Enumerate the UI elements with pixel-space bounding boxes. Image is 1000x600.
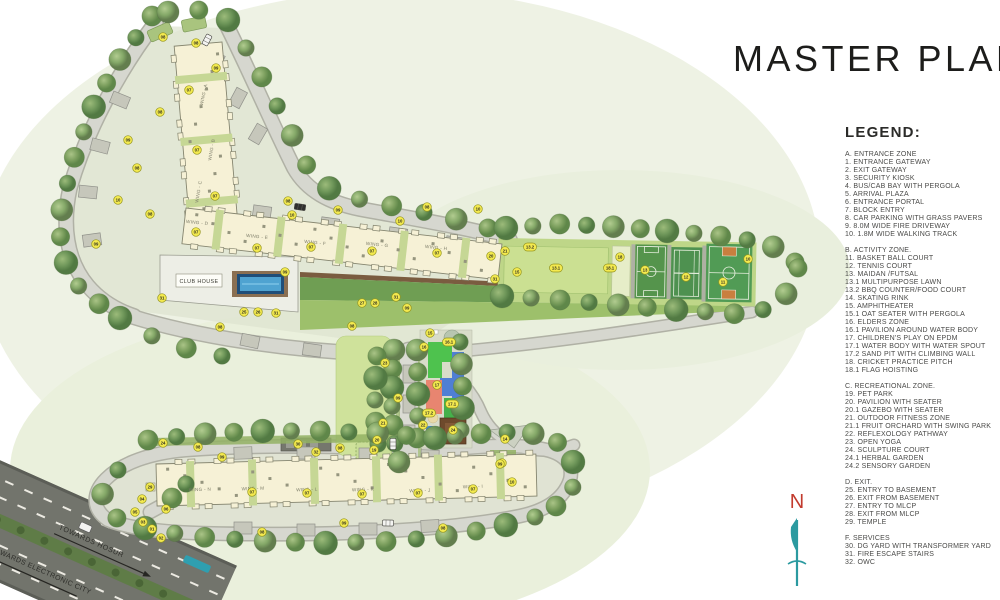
map-marker: 21 — [501, 247, 510, 256]
svg-text:10: 10 — [398, 219, 403, 224]
tree — [214, 348, 231, 365]
tree — [51, 228, 69, 246]
legend-item: 3. SECURITY KIOSK — [845, 175, 997, 183]
legend-item: 32. OWC — [845, 559, 997, 567]
tree — [739, 232, 756, 249]
tree — [167, 525, 184, 542]
map-marker: 08 — [156, 108, 165, 117]
map-marker: 21 — [379, 419, 388, 428]
map-marker: 12 — [682, 273, 691, 282]
map-marker: 07 — [368, 247, 377, 256]
svg-text:09: 09 — [126, 138, 131, 143]
north-arrow-icon — [775, 512, 819, 592]
map-marker: 11 — [719, 278, 728, 287]
svg-text:26: 26 — [256, 310, 261, 315]
svg-text:17: 17 — [435, 383, 440, 388]
map-marker: 30 — [294, 440, 303, 449]
map-marker: 23 — [381, 359, 390, 368]
legend-item: 23. OPEN YOGA — [845, 439, 997, 447]
map-marker: 10 — [508, 478, 517, 487]
legend-section: D. EXIT.25. ENTRY TO BASEMENT26. EXIT FR… — [845, 479, 997, 527]
map-marker: 07 — [253, 244, 262, 253]
tree — [138, 430, 158, 450]
tree — [70, 278, 87, 295]
map-marker: 31 — [158, 294, 167, 303]
legend-item: F. SERVICES — [845, 535, 997, 543]
legend-item: C. RECREATIONAL ZONE. — [845, 383, 997, 391]
car — [294, 203, 306, 210]
svg-text:08: 08 — [286, 199, 291, 204]
tree — [711, 226, 731, 246]
tree — [522, 423, 544, 445]
svg-text:09: 09 — [342, 521, 347, 526]
svg-text:32: 32 — [314, 450, 319, 455]
legend-section: A. ENTRANCE ZONE1. ENTRANCE GATEWAY2. EX… — [845, 151, 997, 239]
svg-text:31: 31 — [394, 295, 399, 300]
legend-item: 13. MAIDAN /FUTSAL — [845, 271, 997, 279]
svg-text:09: 09 — [94, 242, 99, 247]
svg-text:13.1: 13.1 — [552, 266, 561, 271]
svg-text:21: 21 — [503, 249, 508, 254]
page-title: MASTER PLAN — [733, 38, 995, 80]
tree — [724, 304, 744, 324]
tree — [283, 423, 300, 440]
map-marker: 01 — [148, 525, 157, 534]
legend-item: 30. DG YARD WITH TRANSFORMER YARD — [845, 543, 997, 551]
map-marker: 16 — [420, 343, 429, 352]
tree — [409, 363, 427, 381]
tree — [631, 220, 649, 238]
map-marker: 26 — [254, 308, 263, 317]
tree — [490, 284, 514, 308]
tree — [453, 377, 471, 395]
tree — [423, 426, 447, 450]
tree — [655, 219, 679, 243]
map-marker: 31 — [392, 293, 401, 302]
map-marker: 09 — [340, 519, 349, 528]
map-marker: 32 — [312, 448, 321, 457]
svg-text:08: 08 — [260, 530, 265, 535]
tree — [664, 298, 688, 322]
tree — [59, 175, 76, 192]
legend-panel: LEGEND: A. ENTRANCE ZONE1. ENTRANCE GATE… — [845, 124, 997, 575]
map-marker: 07 — [185, 86, 194, 95]
svg-text:28: 28 — [373, 301, 378, 306]
map-marker: 07 — [414, 489, 423, 498]
map-marker: 08 — [192, 39, 201, 48]
legend-item: 15. AMPHITHEATER — [845, 303, 997, 311]
car — [382, 520, 393, 526]
legend-section: B. ACTIVITY ZONE.11. BASKET BALL COURT12… — [845, 247, 997, 375]
map-marker: 09 — [496, 460, 505, 469]
map-marker: 28 — [371, 299, 380, 308]
map-marker: 08 — [216, 323, 225, 332]
map-marker: 08 — [423, 203, 432, 212]
svg-text:30: 30 — [296, 442, 301, 447]
svg-text:10: 10 — [746, 257, 751, 262]
legend-item: 20.1 GAZEBO WITH SEATER — [845, 407, 997, 415]
master-plan-page: TOWARDS HOSUR TOWARDS ELECTRONIC CITY — [0, 0, 1000, 600]
legend-item: 25. ENTRY TO BASEMENT — [845, 487, 997, 495]
tree — [51, 199, 73, 221]
wing-label: WING - N — [189, 487, 211, 493]
tree — [523, 290, 540, 307]
legend-item: 17.2 SAND PIT WITH CLIMBING WALL — [845, 351, 997, 359]
map-marker: 17 — [433, 381, 442, 390]
map-marker: 16.1 — [443, 338, 456, 346]
tree — [406, 382, 430, 406]
map-marker: 15 — [513, 268, 522, 277]
svg-text:02: 02 — [159, 536, 164, 541]
tree — [108, 306, 132, 330]
svg-text:09: 09 — [336, 208, 341, 213]
svg-text:08: 08 — [135, 166, 140, 171]
map-marker: 08 — [159, 33, 168, 42]
legend-item: 4. BUS/CAB BAY WITH PERGOLA — [845, 183, 997, 191]
svg-text:08: 08 — [441, 526, 446, 531]
map-marker: 08 — [194, 443, 203, 452]
svg-text:07: 07 — [305, 491, 310, 496]
driveway-ramp — [234, 447, 252, 460]
svg-text:15: 15 — [515, 270, 520, 275]
map-marker: 22 — [419, 421, 428, 430]
map-marker: 08 — [146, 210, 155, 219]
tree — [176, 338, 196, 358]
svg-text:10: 10 — [290, 213, 295, 218]
svg-text:01: 01 — [150, 527, 155, 532]
svg-text:31: 31 — [160, 296, 165, 301]
tree — [775, 283, 797, 305]
map-marker: 07 — [248, 488, 257, 497]
svg-text:08: 08 — [425, 205, 430, 210]
legend-item: B. ACTIVITY ZONE. — [845, 247, 997, 255]
map-marker: 09 — [394, 394, 403, 403]
driveway-ramp — [359, 523, 377, 535]
svg-text:20: 20 — [489, 254, 494, 259]
legend-item: 18.1 FLAG HOISTING — [845, 367, 997, 375]
map-marker: 24 — [159, 439, 168, 448]
tree — [157, 1, 179, 23]
svg-text:18: 18 — [618, 255, 623, 260]
legend-item: 18. CRICKET PRACTICE PITCH — [845, 359, 997, 367]
legend-section: C. RECREATIONAL ZONE.19. PET PARK20. PAV… — [845, 383, 997, 471]
svg-text:07: 07 — [213, 194, 218, 199]
map-marker: 03 — [139, 518, 148, 527]
svg-text:04: 04 — [140, 497, 145, 502]
map-marker: 13 — [641, 266, 650, 275]
svg-text:18.1: 18.1 — [606, 266, 615, 271]
svg-text:23: 23 — [383, 361, 388, 366]
svg-text:22: 22 — [421, 423, 426, 428]
tree — [546, 496, 566, 516]
tree — [128, 29, 145, 46]
tree — [467, 522, 485, 540]
svg-text:12: 12 — [684, 275, 689, 280]
svg-text:07: 07 — [370, 249, 375, 254]
svg-text:08: 08 — [196, 445, 201, 450]
svg-text:07: 07 — [360, 492, 365, 497]
tree — [548, 433, 566, 451]
svg-text:07: 07 — [309, 245, 314, 250]
tree — [314, 531, 338, 555]
tree — [607, 294, 629, 316]
tree — [64, 147, 84, 167]
map-marker: 10 — [744, 255, 753, 264]
legend-item: 6. ENTRANCE PORTAL — [845, 199, 997, 207]
svg-text:05: 05 — [133, 510, 138, 515]
tree — [110, 462, 127, 479]
map-marker: 20 — [373, 436, 382, 445]
legend-item: 24.2 SENSORY GARDEN — [845, 463, 997, 471]
map-marker: 20 — [487, 252, 496, 261]
tree — [376, 531, 396, 551]
tree — [317, 176, 341, 200]
svg-text:31: 31 — [274, 311, 279, 316]
club-house-label: CLUB HOUSE — [179, 279, 218, 285]
tree — [527, 509, 544, 526]
tree — [251, 419, 275, 443]
svg-text:09: 09 — [498, 462, 503, 467]
tree — [109, 48, 131, 70]
tree — [638, 298, 656, 316]
map-marker: 08 — [133, 164, 142, 173]
svg-text:09: 09 — [283, 270, 288, 275]
legend-item: A. ENTRANCE ZONE — [845, 151, 997, 159]
tree — [494, 513, 518, 537]
svg-text:09: 09 — [405, 306, 410, 311]
svg-text:08: 08 — [194, 41, 199, 46]
svg-text:29: 29 — [148, 485, 153, 490]
legend-item: 29. TEMPLE — [845, 519, 997, 527]
legend-item: 2. EXIT GATEWAY — [845, 167, 997, 175]
legend-item: 14. SKATING RINK — [845, 295, 997, 303]
svg-text:24: 24 — [451, 428, 456, 433]
svg-text:16.1: 16.1 — [445, 340, 454, 345]
compass: N — [775, 492, 819, 596]
tree — [388, 451, 410, 473]
legend-item: 24. SCULPTURE COURT — [845, 447, 997, 455]
legend-item: 1. ENTRANCE GATEWAY — [845, 159, 997, 167]
svg-text:13: 13 — [643, 268, 648, 273]
legend-heading: LEGEND: — [845, 124, 997, 141]
legend-item: 19. PET PARK — [845, 391, 997, 399]
legend-item: 16. ELDERS ZONE — [845, 319, 997, 327]
driveway-ramp — [302, 343, 321, 357]
svg-text:07: 07 — [435, 251, 440, 256]
map-marker: 13.1 — [550, 264, 563, 272]
map-marker: 08 — [258, 528, 267, 537]
map-marker: 08 — [284, 197, 293, 206]
legend-item: 12. TENNIS COURT — [845, 263, 997, 271]
tree — [382, 196, 402, 216]
map-marker: 31 — [272, 309, 281, 318]
svg-text:17.1: 17.1 — [448, 402, 457, 407]
legend-item: D. EXIT. — [845, 479, 997, 487]
map-marker: 05 — [131, 508, 140, 517]
tree — [686, 225, 703, 242]
svg-text:27: 27 — [360, 301, 365, 306]
svg-text:09: 09 — [214, 66, 219, 71]
tree — [310, 421, 330, 441]
map-marker: 07 — [469, 485, 478, 494]
tree — [450, 353, 472, 375]
map-marker: 06 — [162, 505, 171, 514]
map-marker: 08 — [348, 322, 357, 331]
svg-text:08: 08 — [350, 324, 355, 329]
map-marker: 24 — [449, 426, 458, 435]
map-marker: 09 — [218, 453, 227, 462]
tree — [565, 479, 582, 496]
svg-text:17.2: 17.2 — [425, 411, 434, 416]
tree — [348, 534, 365, 551]
map-marker: 18 — [616, 253, 625, 262]
tree — [789, 259, 807, 277]
svg-text:08: 08 — [161, 35, 166, 40]
map-marker: 07 — [192, 228, 201, 237]
map-marker: 09 — [334, 206, 343, 215]
tree — [144, 328, 161, 345]
svg-text:19: 19 — [372, 448, 377, 453]
map-marker: 07 — [307, 243, 316, 252]
tree — [252, 67, 272, 87]
tree — [76, 124, 93, 141]
svg-text:03: 03 — [141, 520, 146, 525]
map-marker: 25 — [240, 308, 249, 317]
legend-item: 24.1 HERBAL GARDEN — [845, 455, 997, 463]
map-marker: 19 — [370, 446, 379, 455]
map-marker: 17.1 — [446, 400, 459, 408]
legend-item: 8. CAR PARKING WITH GRASS PAVERS — [845, 215, 997, 223]
tree — [92, 483, 114, 505]
tree — [494, 216, 518, 240]
svg-text:07: 07 — [416, 491, 421, 496]
legend-list: A. ENTRANCE ZONE1. ENTRANCE GATEWAY2. EX… — [845, 151, 997, 567]
car — [390, 439, 396, 450]
legend-item: 7. BLOCK ENTRY — [845, 207, 997, 215]
map-marker: 07 — [193, 146, 202, 155]
compass-north-label: N — [775, 492, 819, 512]
legend-item: 27. ENTRY TO MLCP — [845, 503, 997, 511]
legend-item: 9. 8.0M WIDE FIRE DRIVEWAY — [845, 223, 997, 231]
map-marker: 17.2 — [423, 409, 436, 417]
map-marker: 07 — [211, 192, 220, 201]
map-marker: 10 — [474, 205, 483, 214]
tree — [561, 450, 585, 474]
tree — [364, 366, 388, 390]
svg-text:25: 25 — [242, 310, 247, 315]
svg-text:11: 11 — [721, 280, 726, 285]
tree — [578, 217, 595, 234]
tree — [367, 392, 384, 409]
tree — [550, 214, 570, 234]
legend-item: 21.1 FRUIT ORCHARD WITH SWING PARK — [845, 423, 997, 431]
tree — [697, 303, 714, 320]
tree — [194, 423, 216, 445]
tree — [108, 509, 126, 527]
tree — [602, 216, 624, 238]
map-marker: 09 — [92, 240, 101, 249]
legend-item: 11. BASKET BALL COURT — [845, 255, 997, 263]
legend-item: 28. EXIT FROM MLCP — [845, 511, 997, 519]
tree — [89, 294, 109, 314]
legend-item: 10. 1.8M WIDE WALKING TRACK — [845, 231, 997, 239]
tree — [216, 8, 240, 32]
svg-text:08: 08 — [158, 110, 163, 115]
tree — [525, 218, 542, 235]
tree — [408, 531, 425, 548]
svg-text:16: 16 — [422, 345, 427, 350]
map-marker: 10 — [114, 196, 123, 205]
map-marker: 10 — [288, 211, 297, 220]
map-marker: 29 — [146, 483, 155, 492]
tree — [445, 208, 467, 230]
tree — [281, 124, 303, 146]
map-marker: 07 — [433, 249, 442, 258]
svg-text:07: 07 — [471, 487, 476, 492]
tree — [581, 294, 598, 311]
tree — [97, 74, 115, 92]
map-marker: 08 — [439, 524, 448, 533]
svg-text:10: 10 — [116, 198, 121, 203]
svg-text:13.2: 13.2 — [526, 245, 535, 250]
svg-text:09: 09 — [396, 396, 401, 401]
map-marker: 07 — [303, 489, 312, 498]
driveway-ramp — [78, 185, 97, 199]
map-marker: 10 — [396, 217, 405, 226]
svg-text:07: 07 — [195, 148, 200, 153]
tree — [351, 191, 368, 208]
map-marker: 31 — [491, 275, 500, 284]
svg-text:07: 07 — [187, 88, 192, 93]
legend-item: 16.1 PAVILION AROUND WATER BODY — [845, 327, 997, 335]
svg-text:15: 15 — [428, 331, 433, 336]
svg-text:07: 07 — [255, 246, 260, 251]
svg-text:07: 07 — [194, 230, 199, 235]
map-marker: 04 — [138, 495, 147, 504]
tree — [54, 251, 78, 275]
tree — [269, 98, 286, 115]
svg-text:14: 14 — [503, 437, 508, 442]
svg-text:07: 07 — [250, 490, 255, 495]
legend-item: 20. PAVILION WITH SEATER — [845, 399, 997, 407]
svg-text:31: 31 — [493, 277, 498, 282]
legend-section: F. SERVICES30. DG YARD WITH TRANSFORMER … — [845, 535, 997, 567]
svg-text:08: 08 — [338, 446, 343, 451]
svg-text:08: 08 — [148, 212, 153, 217]
tree — [471, 424, 491, 444]
legend-item: 13.2 BBQ COUNTER/FOOD COURT — [845, 287, 997, 295]
legend-item: 13.1 MULTIPURPOSE LAWN — [845, 279, 997, 287]
basketball-court — [705, 244, 752, 303]
map-marker: 09 — [281, 268, 290, 277]
map-marker: 02 — [157, 534, 166, 543]
tree — [286, 533, 304, 551]
legend-item: 17.1 WATER BODY WITH WATER SPOUT — [845, 343, 997, 351]
map-marker: 15 — [426, 329, 435, 338]
legend-item: 5. ARRIVAL PLAZA — [845, 191, 997, 199]
tree — [227, 531, 244, 548]
tree — [190, 1, 208, 19]
map-marker: 09 — [212, 64, 221, 73]
map-marker: 14 — [501, 435, 510, 444]
tree — [550, 290, 570, 310]
legend-item: 15.1 OAT SEATER WITH PERGOLA — [845, 311, 997, 319]
tree — [762, 236, 784, 258]
map-marker: 27 — [358, 299, 367, 308]
legend-item: 26. EXIT FROM BASEMENT — [845, 495, 997, 503]
map-marker: 09 — [124, 136, 133, 145]
futsal-court — [635, 244, 668, 299]
